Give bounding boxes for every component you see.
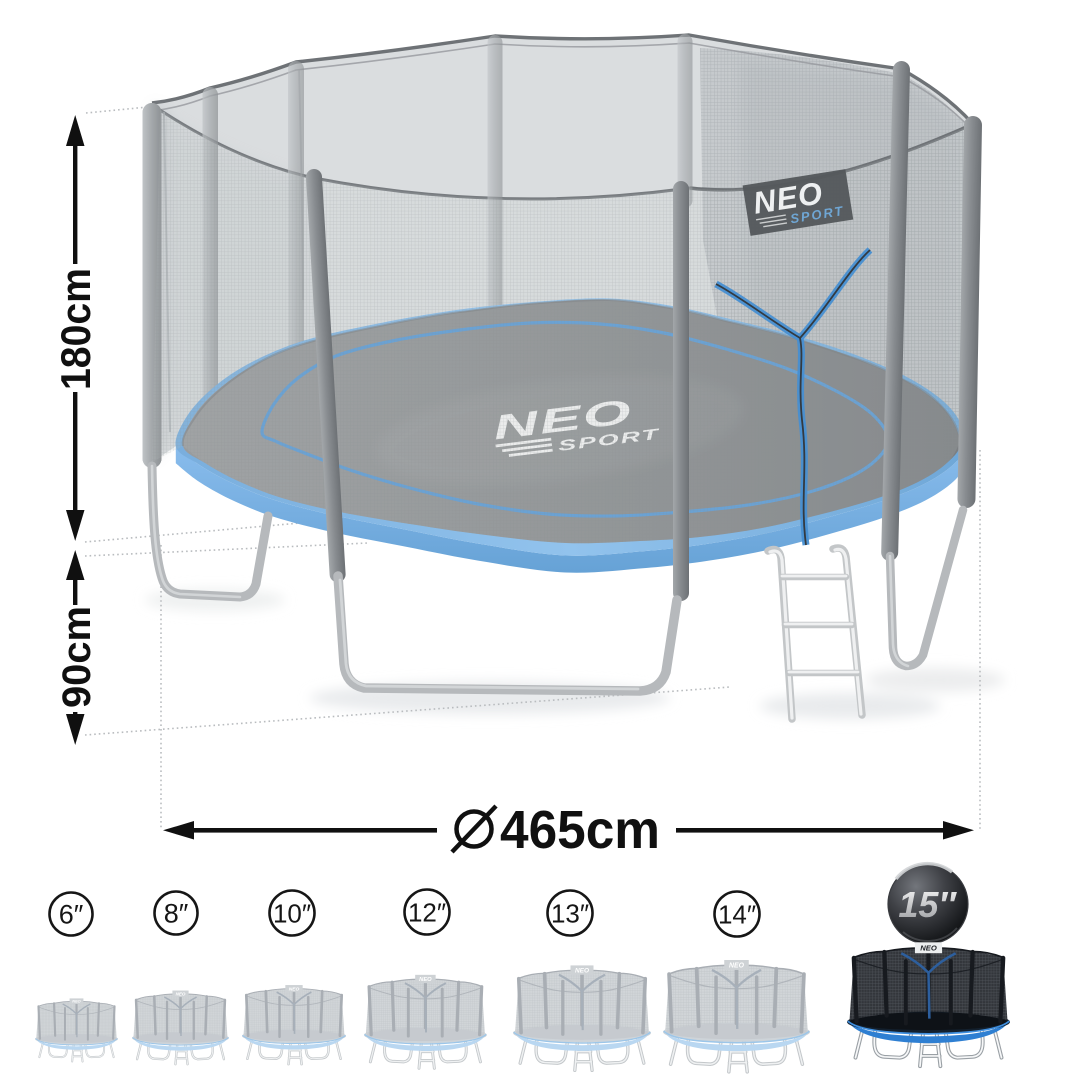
svg-text:15″: 15″ (898, 884, 957, 925)
svg-text:8″: 8″ (164, 899, 189, 929)
svg-text:13″: 13″ (551, 899, 589, 929)
svg-text:14″: 14″ (718, 900, 756, 930)
svg-text:10″: 10″ (273, 899, 311, 929)
svg-text:180cm: 180cm (52, 268, 99, 390)
svg-text:465cm: 465cm (500, 800, 660, 860)
svg-text:90cm: 90cm (55, 606, 99, 708)
svg-text:6″: 6″ (59, 900, 84, 930)
svg-text:12″: 12″ (408, 898, 446, 928)
